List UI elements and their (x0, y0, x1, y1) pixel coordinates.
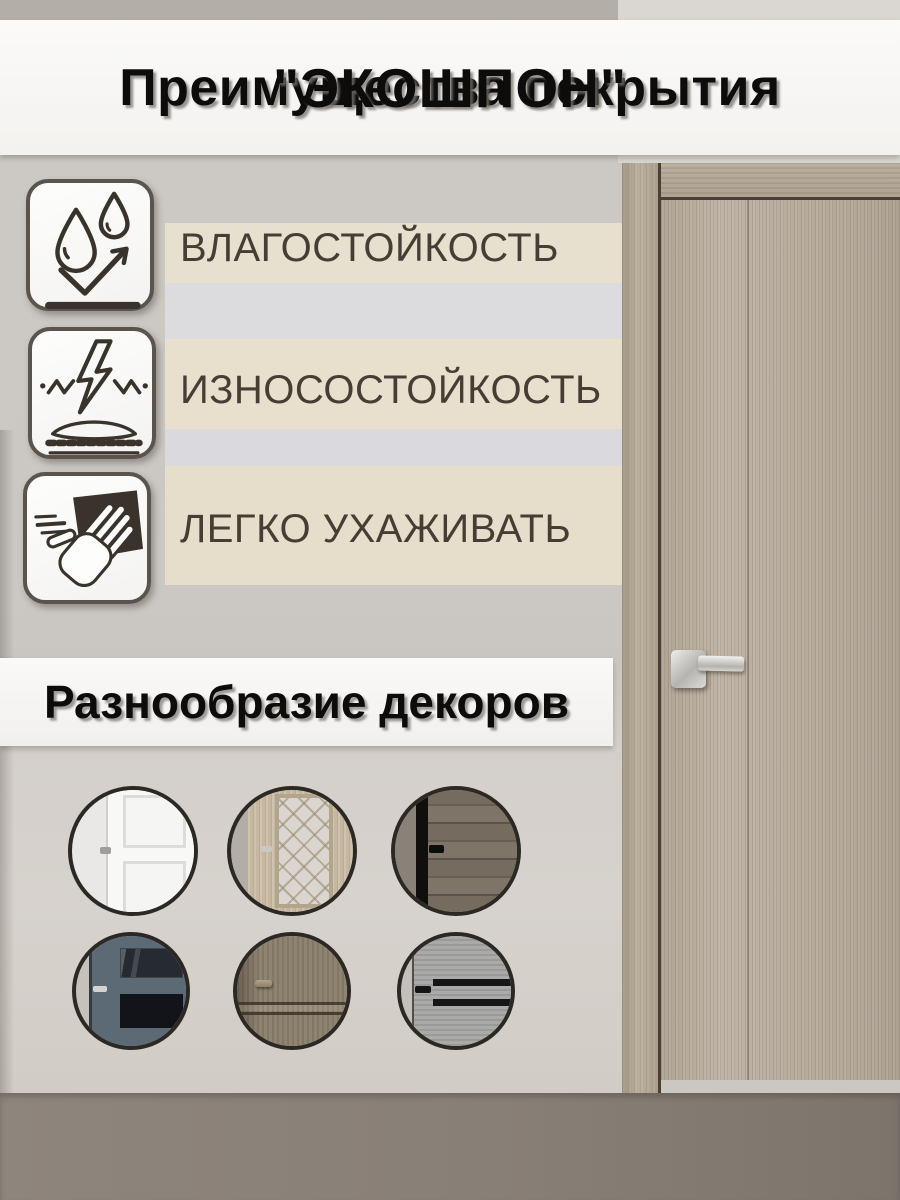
door-rail-line (237, 1012, 347, 1015)
decors-title: Разнообразие декоров (44, 675, 569, 729)
impact-lightning-icon (32, 333, 156, 457)
door-panel-seam (747, 200, 749, 1080)
door-rail-line (237, 1002, 347, 1005)
patterned-glass (275, 794, 334, 909)
wear-resistance-card (28, 327, 156, 459)
decor-gray-loft-door (397, 932, 515, 1050)
decor-dark-rustic-door (391, 786, 521, 916)
glass-insert-bottom (120, 994, 183, 1028)
door-leaf-woodgrain (661, 200, 900, 1080)
dark-door-edge (416, 790, 428, 912)
wall-corner-shadow (0, 430, 14, 1093)
mini-door (237, 936, 347, 1046)
black-stripe (433, 979, 511, 986)
decor-walnut-classic-door (233, 932, 351, 1050)
feature-label-easy-care: ЛЕГКО УХАЖИВАТЬ (180, 505, 571, 553)
door-casing-top (658, 163, 900, 199)
mini-door-handle (429, 845, 444, 853)
decors-title-banner: Разнообразие декоров (0, 658, 613, 746)
door-panel (123, 861, 187, 916)
decor-oak-glass-door (227, 786, 357, 916)
wall-sliver (395, 790, 416, 912)
water-drops-icon (30, 185, 154, 309)
door-photo (618, 150, 900, 1093)
mini-door-handle (415, 986, 431, 993)
mini-door-handle (260, 846, 272, 852)
header-title-line2: "ЭКОШПОН" (273, 58, 627, 118)
door-panel (123, 795, 187, 848)
header-banner: Преимущества покрытия "ЭКОШПОН" (0, 20, 900, 155)
black-stripe (433, 999, 511, 1006)
moisture-resistance-card (26, 179, 154, 311)
footer-banner: КАЧЕСТВО МАТЕРИАЛА (0, 1093, 900, 1200)
easy-care-card (23, 472, 151, 604)
glass-insert-top (120, 948, 183, 978)
wipe-hand-icon (27, 478, 151, 602)
ecoveneer-ad-poster: Преимущества покрытия "ЭКОШПОН" ВЛАГОСТО… (0, 0, 900, 1200)
mini-door (106, 788, 198, 915)
mini-door-handle (255, 980, 272, 987)
feature-label-moisture: ВЛАГОСТОЙКОСТЬ (180, 224, 559, 272)
decor-blue-glass-door (72, 932, 190, 1050)
decor-white-classic-door (68, 786, 198, 916)
mini-door-handle (100, 847, 111, 854)
mini-door-handle (93, 986, 107, 992)
door-handle-lever (698, 655, 744, 671)
door-casing-vertical (622, 163, 658, 1093)
feature-label-wear: ИЗНОСОСТОЙКОСТЬ (180, 366, 602, 414)
